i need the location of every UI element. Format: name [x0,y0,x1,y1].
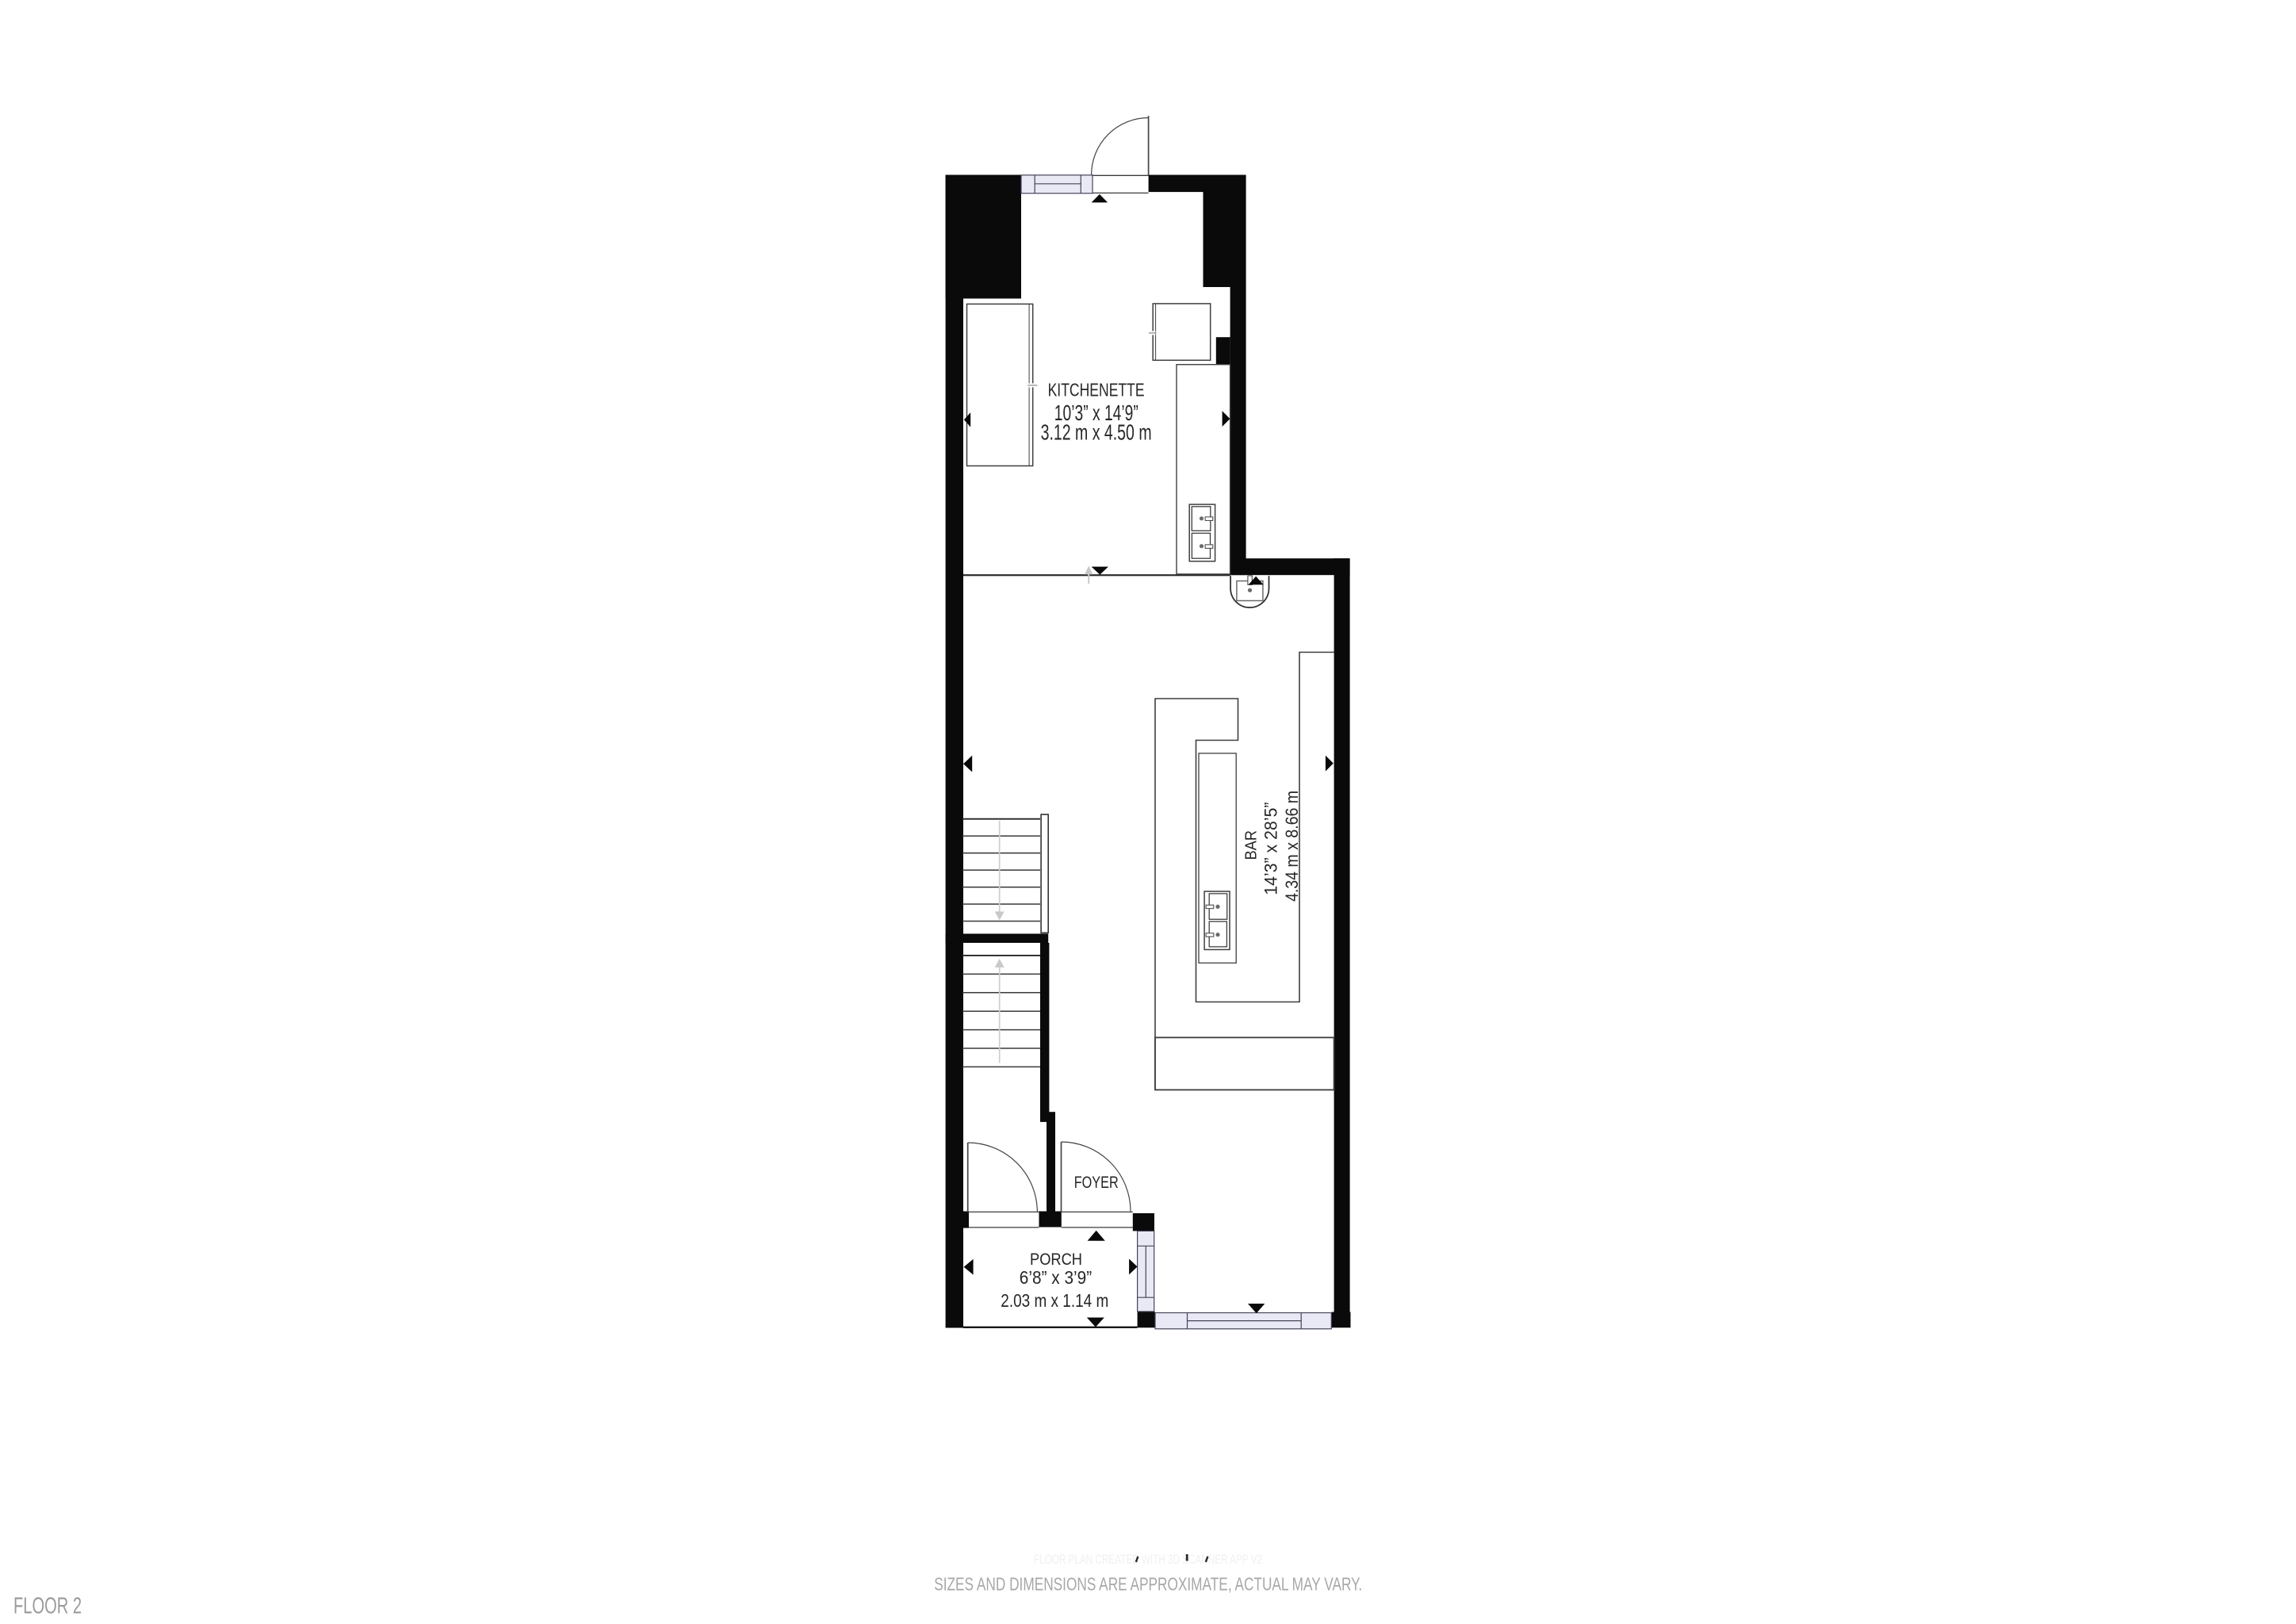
svg-text:SIZES AND DIMENSIONS ARE APPRO: SIZES AND DIMENSIONS ARE APPROXIMATE, AC… [934,1574,1362,1595]
svg-text:KITCHENETTE: KITCHENETTE [1048,380,1145,400]
svg-text:14’3” x 28’5”: 14’3” x 28’5” [1261,802,1280,895]
svg-text:6’8” x 3’9”: 6’8” x 3’9” [1020,1267,1092,1288]
svg-text:2.03 m x 1.14 m: 2.03 m x 1.14 m [1001,1290,1108,1311]
svg-text:BAR: BAR [1243,830,1261,860]
svg-text:FLOOR 2: FLOOR 2 [13,1594,82,1619]
svg-text:FLOOR PLAN CREATED WITH 3D SCA: FLOOR PLAN CREATED WITH 3D SCANNER APP V… [1034,1552,1262,1567]
svg-text:4.34 m x 8.66 m: 4.34 m x 8.66 m [1282,791,1302,902]
svg-text:FOYER: FOYER [1074,1173,1119,1192]
svg-text:PORCH: PORCH [1030,1250,1082,1269]
svg-text:3.12 m x 4.50 m: 3.12 m x 4.50 m [1041,419,1152,444]
